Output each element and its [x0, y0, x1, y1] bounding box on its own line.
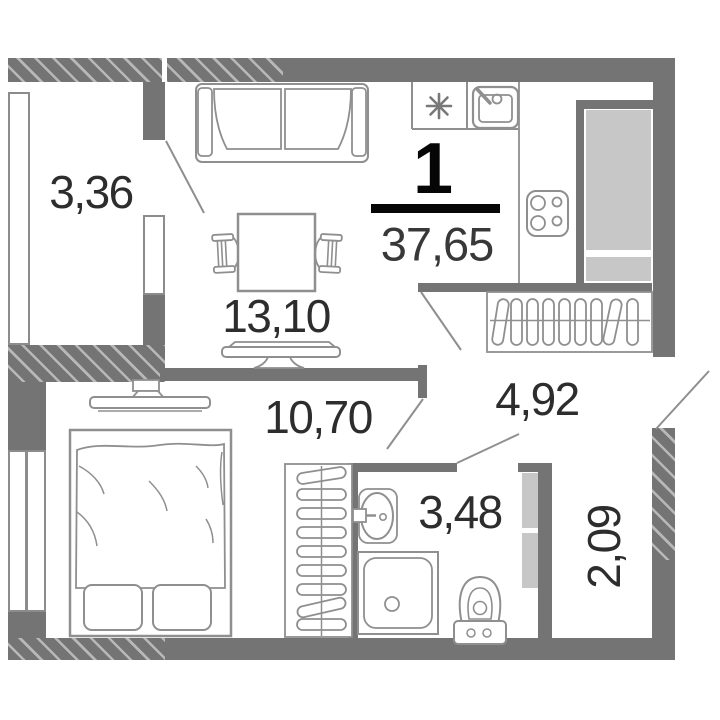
area-label-bedroom: 10,70 — [264, 394, 372, 440]
door-bathroom-swing — [457, 434, 519, 463]
rooms-count: 1 — [413, 128, 451, 210]
wall-top-joint-gap — [162, 58, 167, 82]
wardrobe-hangers-icon — [285, 464, 352, 637]
window-bedroom — [8, 450, 46, 612]
door-loggia-right-swing — [656, 371, 709, 429]
floor-plan: 3,36 13,10 10,70 4,92 3,48 2,09 1 37,65 — [0, 0, 720, 720]
wall-bedroom-loggia-hatched — [8, 345, 165, 382]
wall-top-exterior-hatched — [8, 58, 283, 82]
chair-icon — [212, 234, 342, 273]
window-bedroom-mullion — [25, 452, 28, 610]
wall-bottom-exterior-hatched — [8, 638, 165, 660]
door-bedroom-swing — [387, 399, 423, 449]
wall-right-exterior — [653, 82, 675, 357]
fridge — [586, 110, 651, 250]
wall-loggia-living-top — [143, 82, 165, 140]
hob-4-burners-icon — [527, 191, 568, 236]
loggia-left-glazing — [8, 92, 30, 345]
total-area-divider — [371, 204, 500, 213]
sofa-icon — [196, 84, 368, 162]
area-label-loggia-right: 2,09 — [581, 505, 627, 589]
area-label-living-room: 13,10 — [222, 293, 330, 339]
wall-partition-end-cap — [418, 365, 427, 398]
wall-bedroom-left-lower — [8, 612, 46, 638]
toilet-icon — [454, 577, 506, 644]
wall-living-bedroom-partition — [160, 368, 418, 381]
shower-tray-icon — [358, 552, 438, 634]
shaft-panel-lower — [522, 533, 538, 588]
dining-table-icon — [238, 214, 315, 291]
wall-loggia-right-solid — [652, 560, 675, 638]
wall-shaft-vertical — [538, 463, 552, 638]
stove-asterisk-icon — [427, 94, 451, 118]
wall-bathroom-left — [348, 463, 358, 638]
wall-top-exterior-solid — [283, 58, 675, 82]
total-area: 37,65 — [381, 217, 494, 272]
wall-fridge-nook-side — [576, 100, 584, 283]
area-label-hallway: 4,92 — [495, 376, 579, 422]
living-tv-icon — [222, 342, 340, 368]
area-label-bathroom: 3,48 — [418, 489, 502, 535]
shaft-panel-upper — [522, 473, 538, 528]
wall-fridge-nook-top — [577, 100, 653, 109]
wall-loggia-right-hatched — [652, 428, 675, 560]
wall-bottom-exterior-solid — [165, 638, 675, 660]
kitchen-cabinet — [586, 257, 651, 281]
wall-loggia-living-bottom — [143, 295, 165, 345]
window-loggia-living — [143, 215, 165, 295]
washbasin-icon — [353, 489, 397, 543]
wall-hallway-top — [418, 283, 652, 292]
wall-bedroom-left-upper — [8, 382, 46, 450]
area-label-loggia-left: 3,36 — [49, 169, 133, 215]
bedroom-tv-icon — [90, 380, 210, 411]
double-bed-icon — [70, 430, 231, 636]
door-living-hallway-swing — [421, 292, 461, 350]
wall-bathroom-top — [348, 463, 457, 472]
door-loggia-left-swing — [166, 141, 204, 213]
kitchen-sink-icon — [473, 87, 518, 128]
coat-rack-icon — [487, 292, 652, 352]
